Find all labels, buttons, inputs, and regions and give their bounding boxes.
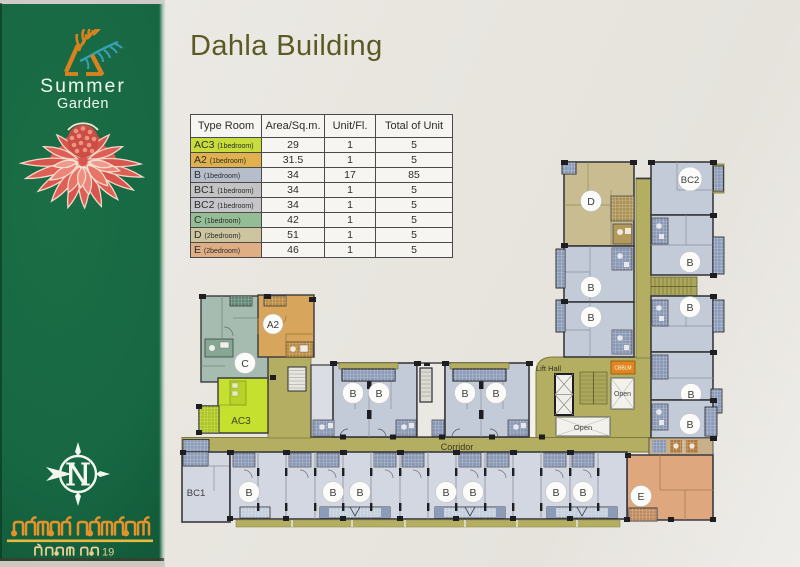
svg-text:Lift Hall: Lift Hall bbox=[536, 364, 561, 373]
svg-text:B: B bbox=[461, 388, 468, 400]
svg-text:Open: Open bbox=[574, 423, 592, 432]
svg-text:B: B bbox=[686, 302, 693, 314]
svg-text:A2: A2 bbox=[267, 320, 280, 331]
svg-text:B: B bbox=[375, 388, 382, 400]
svg-text:B: B bbox=[579, 487, 586, 499]
svg-text:B: B bbox=[356, 487, 363, 499]
svg-text:BC1: BC1 bbox=[187, 488, 205, 499]
svg-text:B: B bbox=[686, 419, 693, 431]
svg-text:B: B bbox=[349, 388, 356, 400]
svg-text:E: E bbox=[637, 491, 644, 503]
svg-text:B: B bbox=[245, 487, 252, 499]
svg-text:C: C bbox=[241, 358, 249, 370]
svg-text:D: D bbox=[587, 196, 595, 208]
svg-text:Open: Open bbox=[614, 391, 631, 398]
svg-text:BC2: BC2 bbox=[681, 175, 699, 186]
svg-text:AC3: AC3 bbox=[231, 416, 251, 427]
svg-text:B: B bbox=[552, 487, 559, 499]
svg-text:B: B bbox=[587, 312, 594, 324]
svg-text:CBBLM: CBBLM bbox=[614, 366, 631, 372]
svg-text:B: B bbox=[442, 487, 449, 499]
svg-text:B: B bbox=[587, 282, 594, 294]
svg-text:B: B bbox=[686, 257, 693, 269]
svg-text:B: B bbox=[329, 487, 336, 499]
svg-text:B: B bbox=[492, 388, 499, 400]
svg-text:B: B bbox=[469, 487, 476, 499]
